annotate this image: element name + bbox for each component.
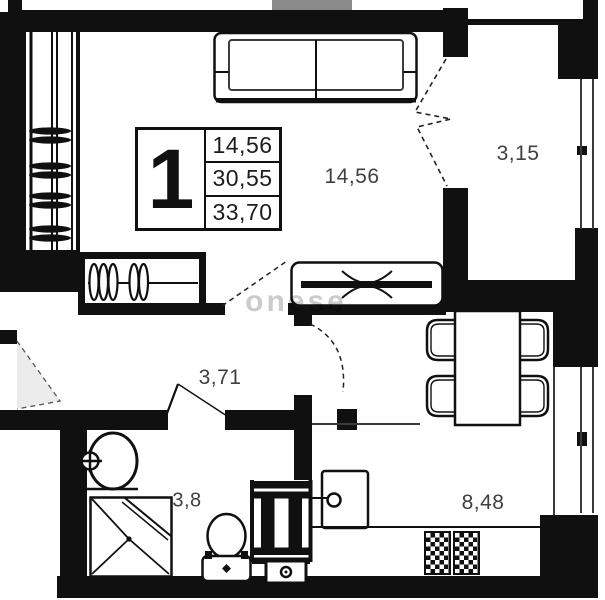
sofa [215, 33, 417, 103]
label-hallway: 3,71 [199, 366, 242, 390]
balcony-door-swing [415, 59, 451, 186]
entry-door-swing [17, 341, 60, 409]
shaft-hatch-marks [29, 127, 71, 241]
machine-door-icon [328, 494, 341, 507]
dining-table [455, 311, 520, 425]
bathroom-sink [78, 433, 138, 489]
room-count: 1 [138, 130, 206, 228]
info-value-3: 33,70 [206, 197, 279, 228]
label-balcony: 3,15 [497, 142, 540, 166]
toilet [203, 514, 251, 581]
label-kitchen: 8,48 [462, 491, 505, 515]
apartment-info-box: 1 14,56 30,55 33,70 [135, 127, 282, 231]
shower [91, 498, 172, 577]
info-value-1: 14,56 [206, 130, 279, 163]
vent-shaft [29, 32, 72, 252]
door-swings [166, 59, 451, 416]
wardrobe [82, 256, 203, 307]
washing-machine [312, 471, 368, 528]
floor-plan: 1 14,56 30,55 33,70 14,56 3,15 3,71 3,8 … [0, 0, 605, 600]
kitchen-door-swing [310, 324, 344, 392]
watermark: onese [245, 285, 347, 319]
label-bathroom: 3,8 [172, 490, 201, 513]
plumbing-stack [250, 480, 313, 583]
info-value-2: 30,55 [206, 163, 279, 196]
label-living-room: 14,56 [324, 165, 379, 189]
